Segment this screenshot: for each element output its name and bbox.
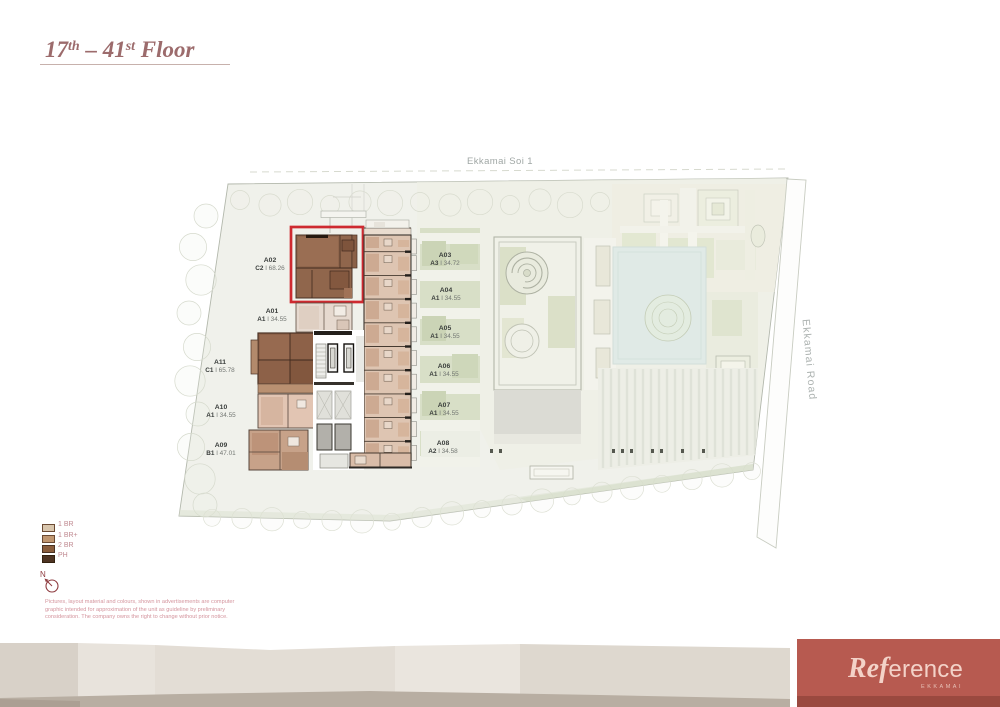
svg-text:A05: A05 bbox=[439, 325, 452, 332]
svg-text:A1 ǀ 34.55: A1 ǀ 34.55 bbox=[257, 316, 287, 323]
svg-text:A10: A10 bbox=[215, 404, 228, 411]
svg-text:A11: A11 bbox=[214, 359, 226, 366]
svg-text:C1 ǀ 65.78: C1 ǀ 65.78 bbox=[205, 367, 235, 374]
svg-text:A06: A06 bbox=[438, 363, 451, 370]
svg-text:A04: A04 bbox=[440, 287, 453, 294]
svg-text:A03: A03 bbox=[439, 252, 452, 259]
svg-text:N: N bbox=[40, 570, 46, 579]
svg-text:A02: A02 bbox=[264, 257, 277, 264]
svg-text:A2 ǀ 34.58: A2 ǀ 34.58 bbox=[428, 448, 458, 455]
svg-text:Ekkamai Soi 1: Ekkamai Soi 1 bbox=[467, 156, 533, 167]
svg-text:B1 ǀ 47.01: B1 ǀ 47.01 bbox=[206, 450, 236, 457]
svg-text:C2 ǀ 68.26: C2 ǀ 68.26 bbox=[255, 265, 285, 272]
svg-text:A08: A08 bbox=[437, 440, 450, 447]
svg-text:A09: A09 bbox=[215, 442, 228, 449]
svg-text:A1 ǀ 34.55: A1 ǀ 34.55 bbox=[431, 295, 461, 302]
svg-text:A1 ǀ 34.55: A1 ǀ 34.55 bbox=[206, 412, 236, 419]
svg-text:A1 ǀ 34.55: A1 ǀ 34.55 bbox=[429, 371, 459, 378]
svg-text:A07: A07 bbox=[438, 402, 451, 409]
svg-text:A1 ǀ 34.55: A1 ǀ 34.55 bbox=[429, 410, 459, 417]
svg-text:A3 ǀ 34.72: A3 ǀ 34.72 bbox=[430, 260, 460, 267]
svg-text:A1 ǀ 34.55: A1 ǀ 34.55 bbox=[430, 333, 460, 340]
svg-text:Ekkamai Road: Ekkamai Road bbox=[799, 319, 818, 401]
svg-text:A01: A01 bbox=[266, 308, 279, 315]
